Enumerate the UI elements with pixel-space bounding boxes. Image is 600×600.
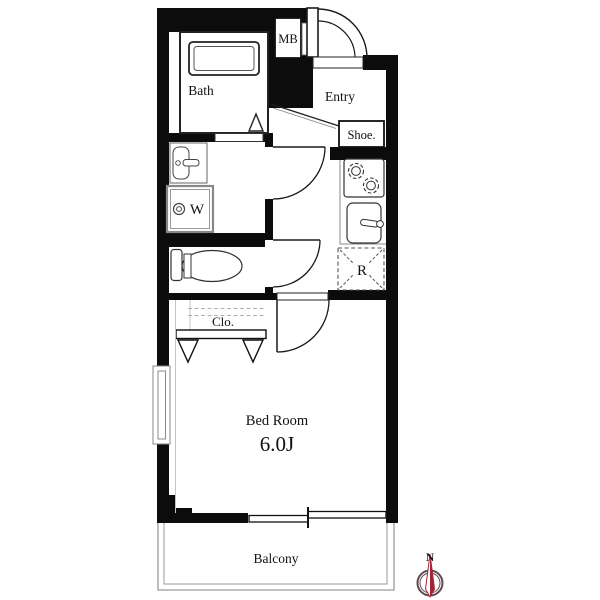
floor-plan: Bath MB Entry Shoe. W bbox=[0, 0, 600, 600]
bedroom-label: Bed Room bbox=[246, 413, 309, 429]
balcony-window-sash-left bbox=[249, 516, 308, 523]
balcony-label: Balcony bbox=[254, 551, 299, 566]
washer-label: W bbox=[190, 202, 205, 218]
wall-corridor-a bbox=[265, 133, 273, 147]
floor-plan-page: Bath MB Entry Shoe. W bbox=[0, 0, 600, 600]
closet-front-bar bbox=[176, 330, 266, 339]
shoe-box-label: Shoe. bbox=[347, 128, 375, 142]
kitchen: R bbox=[338, 159, 386, 290]
vanity-faucet-icon bbox=[183, 160, 199, 167]
balcony-window bbox=[248, 507, 386, 528]
bedroom: Bed Room 6.0J bbox=[176, 293, 330, 513]
meter-box-label: MB bbox=[278, 32, 297, 46]
entry-door-arc-outer bbox=[318, 9, 367, 58]
closet-label: Clo. bbox=[212, 314, 234, 329]
closet-door-mark-left bbox=[178, 340, 198, 362]
toilet-room bbox=[171, 250, 242, 282]
entry-door-arc-inner bbox=[318, 21, 355, 58]
bath-room: Bath bbox=[180, 32, 268, 142]
refrigerator-label: R bbox=[357, 263, 367, 279]
closet: Clo. bbox=[176, 300, 266, 362]
washroom: W bbox=[167, 143, 213, 232]
toilet-seat-icon bbox=[184, 254, 191, 278]
wall-corridor-b bbox=[265, 199, 273, 240]
compass-north-label: N bbox=[426, 552, 435, 564]
bath-label: Bath bbox=[188, 83, 214, 98]
toilet-tank-icon bbox=[171, 250, 182, 281]
balcony-window-sash-right bbox=[308, 512, 386, 519]
sink-faucet-knob bbox=[377, 221, 384, 228]
bedroom-door-arc bbox=[277, 300, 329, 352]
stove-icon bbox=[344, 159, 384, 197]
washroom-door-arc bbox=[273, 147, 325, 199]
entry-door-leaf bbox=[307, 8, 318, 57]
bedroom-size-label: 6.0J bbox=[260, 432, 294, 456]
wall-bottom-left-pillar bbox=[157, 495, 192, 523]
wall-washroom-toilet-band bbox=[157, 233, 265, 247]
corridor-doors bbox=[273, 147, 325, 287]
wall-kitchen-top-band bbox=[330, 147, 386, 160]
north-compass-icon: N bbox=[418, 552, 443, 597]
meter-box: MB bbox=[275, 18, 307, 58]
bath-door-opening bbox=[215, 134, 263, 142]
wall-closet-top-band bbox=[157, 293, 277, 300]
entry-step-line-2 bbox=[273, 108, 336, 129]
wall-right bbox=[386, 57, 398, 523]
entry-threshold bbox=[313, 57, 363, 68]
toilet-door-arc bbox=[273, 240, 320, 287]
entry-door bbox=[307, 8, 367, 68]
closet-door-mark-right bbox=[243, 340, 263, 362]
side-window bbox=[153, 366, 170, 444]
wall-bedroom-topright-band bbox=[328, 290, 386, 300]
side-window-sash bbox=[158, 371, 166, 439]
washer-drain-icon bbox=[174, 204, 185, 215]
bedroom-door-threshold bbox=[277, 293, 328, 300]
entry-label: Entry bbox=[325, 89, 355, 104]
balcony: Balcony bbox=[158, 523, 394, 590]
